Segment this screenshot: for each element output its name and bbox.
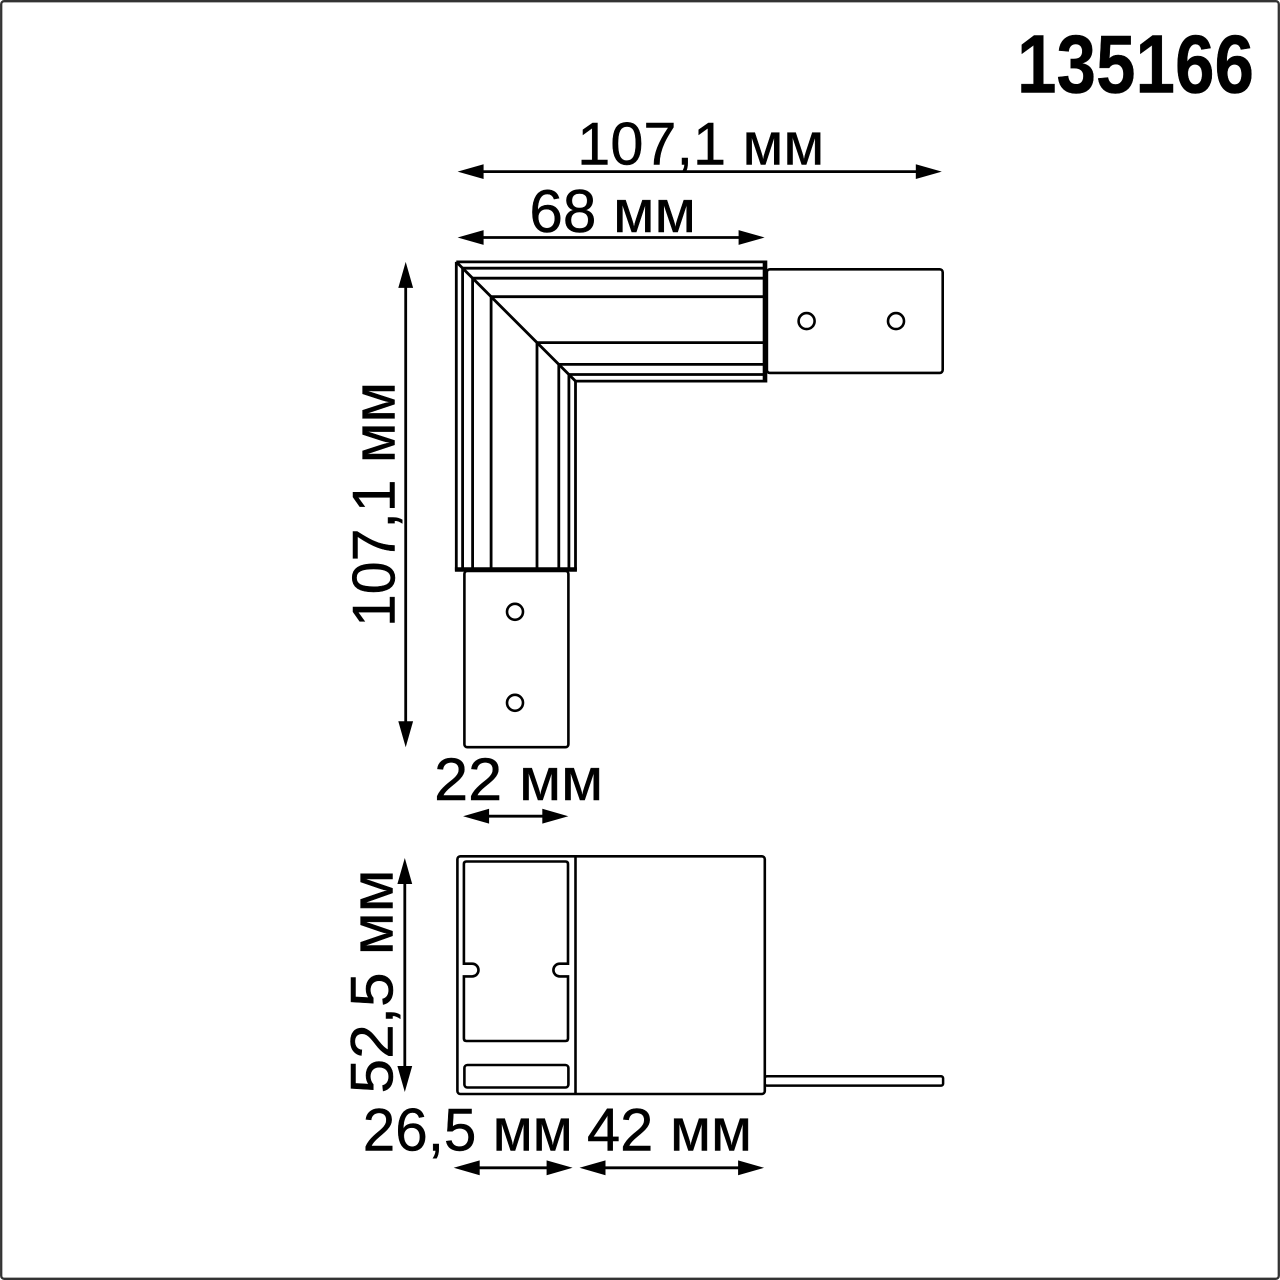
- svg-text:52,5 мм: 52,5 мм: [338, 870, 405, 1094]
- svg-text:26,5 мм: 26,5 мм: [363, 1097, 573, 1164]
- svg-text:107,1 мм: 107,1 мм: [340, 382, 407, 627]
- svg-text:22 мм: 22 мм: [434, 746, 603, 813]
- svg-text:107,1 мм: 107,1 мм: [577, 110, 824, 177]
- svg-text:135166: 135166: [1017, 19, 1254, 111]
- svg-text:68 мм: 68 мм: [529, 178, 696, 245]
- svg-text:42 мм: 42 мм: [587, 1097, 752, 1164]
